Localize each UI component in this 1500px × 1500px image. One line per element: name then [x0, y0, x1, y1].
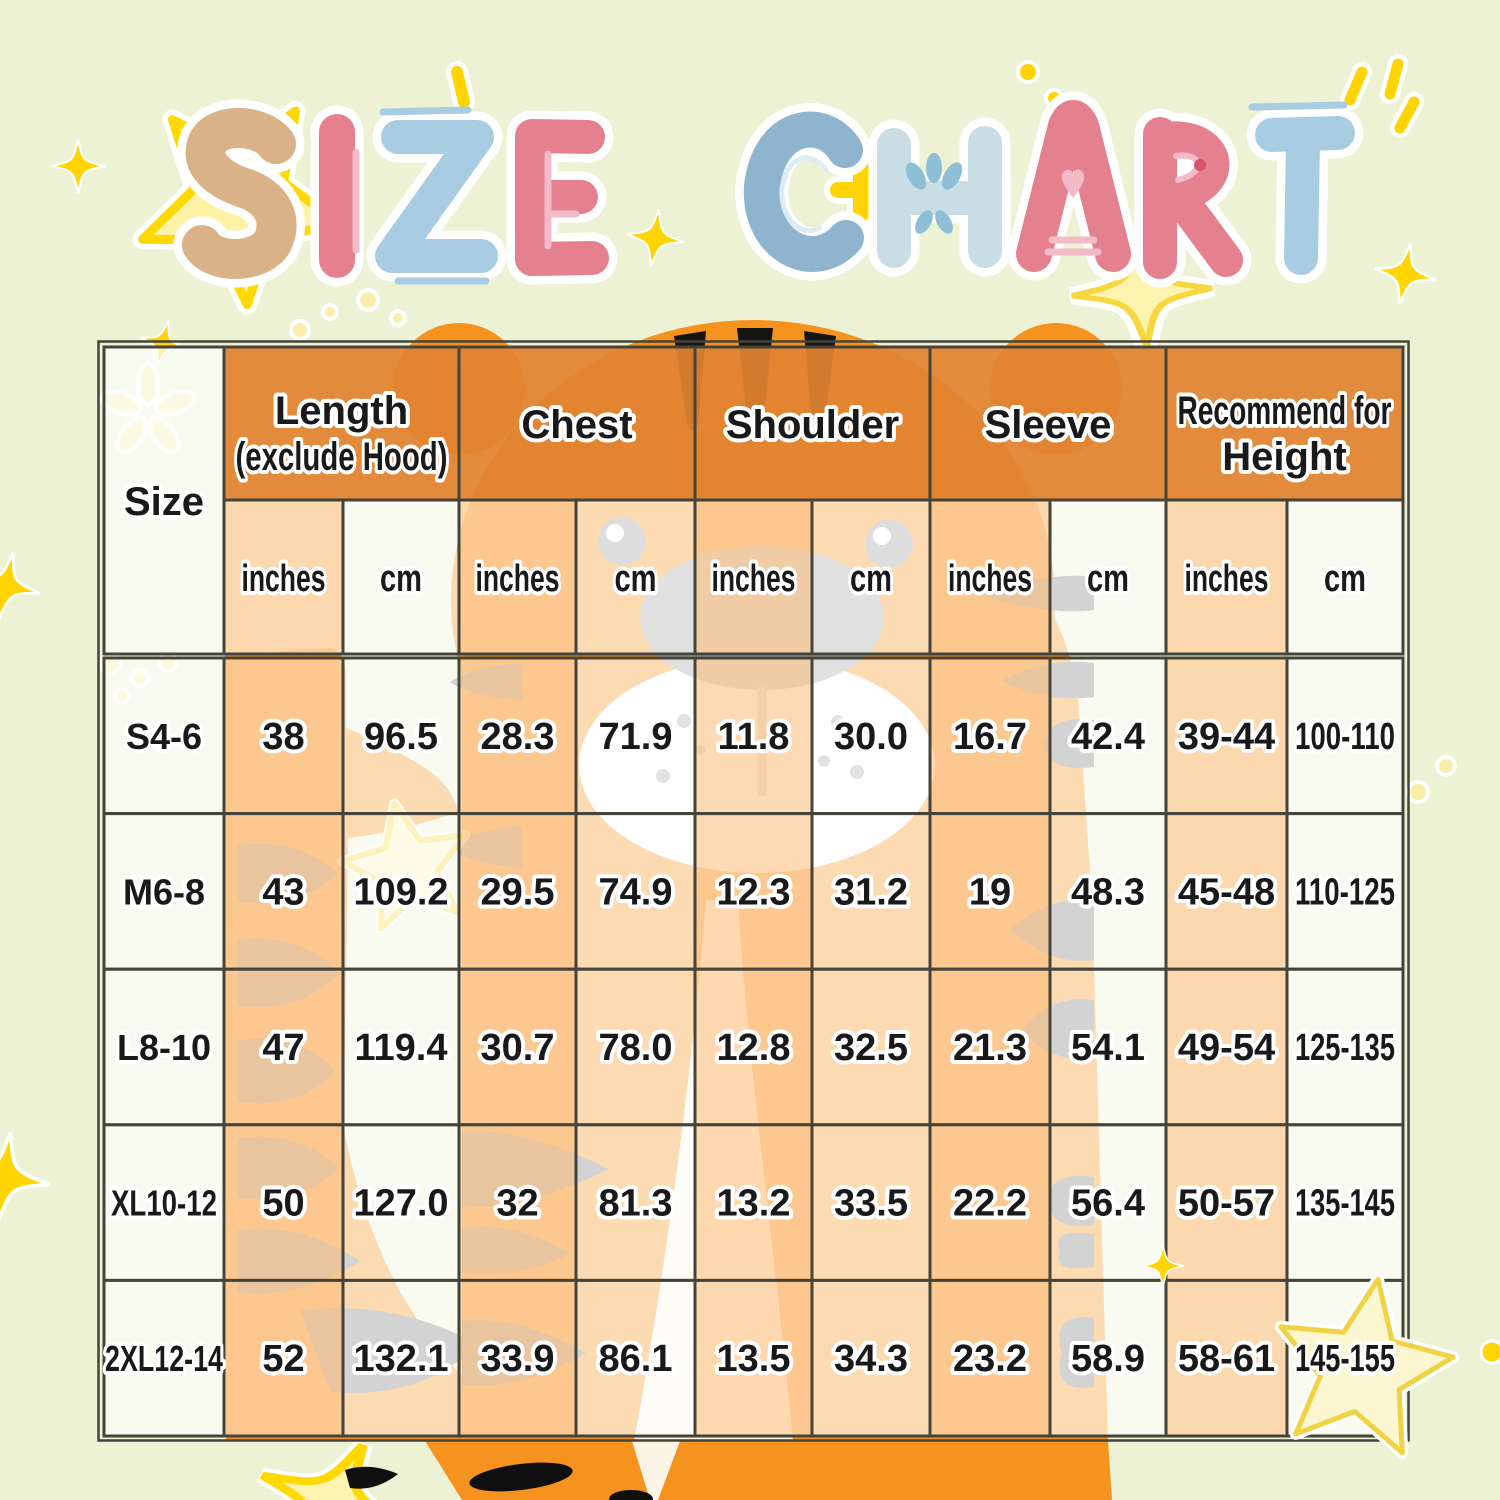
svg-text:49-54: 49-54 — [1178, 1027, 1275, 1069]
svg-text:inches: inches — [242, 558, 326, 600]
svg-text:135-145: 135-145 — [1295, 1183, 1395, 1225]
svg-text:16.7: 16.7 — [953, 716, 1027, 758]
svg-text:50: 50 — [262, 1183, 304, 1225]
svg-text:86.1: 86.1 — [599, 1338, 673, 1380]
svg-text:54.1: 54.1 — [1071, 1027, 1145, 1069]
svg-text:12.3: 12.3 — [717, 871, 791, 913]
svg-text:109.2: 109.2 — [353, 871, 448, 913]
svg-text:50-57: 50-57 — [1178, 1183, 1275, 1225]
svg-text:47: 47 — [262, 1027, 304, 1069]
svg-text:71.9: 71.9 — [599, 716, 673, 758]
svg-text:81.3: 81.3 — [599, 1183, 673, 1225]
svg-text:cm: cm — [1324, 558, 1366, 600]
svg-text:58.9: 58.9 — [1071, 1338, 1145, 1380]
svg-text:74.9: 74.9 — [599, 871, 673, 913]
svg-text:42.4: 42.4 — [1071, 716, 1145, 758]
svg-text:S4-6: S4-6 — [126, 716, 202, 757]
svg-text:28.3: 28.3 — [481, 716, 555, 758]
svg-text:31.2: 31.2 — [834, 871, 908, 913]
svg-text:inches: inches — [948, 558, 1032, 600]
svg-text:(exclude Hood): (exclude Hood) — [236, 435, 448, 479]
svg-text:32: 32 — [496, 1183, 538, 1225]
svg-text:inches: inches — [712, 558, 796, 600]
svg-text:L8-10: L8-10 — [117, 1027, 211, 1068]
svg-text:145-155: 145-155 — [1295, 1338, 1395, 1380]
svg-text:33.9: 33.9 — [481, 1338, 555, 1380]
svg-text:13.2: 13.2 — [717, 1183, 791, 1225]
svg-text:132.1: 132.1 — [353, 1338, 448, 1380]
svg-text:30.0: 30.0 — [834, 716, 908, 758]
svg-text:127.0: 127.0 — [353, 1183, 448, 1225]
svg-text:inches: inches — [476, 558, 560, 600]
svg-text:125-135: 125-135 — [1295, 1027, 1395, 1069]
svg-text:96.5: 96.5 — [364, 716, 438, 758]
svg-text:119.4: 119.4 — [355, 1027, 448, 1069]
svg-text:29.5: 29.5 — [481, 871, 555, 913]
svg-text:Recommend for: Recommend for — [1178, 389, 1392, 433]
svg-text:Sleeve: Sleeve — [985, 403, 1112, 447]
svg-text:cm: cm — [850, 558, 892, 600]
svg-text:52: 52 — [262, 1338, 304, 1380]
svg-text:23.2: 23.2 — [953, 1338, 1027, 1380]
svg-text:11.8: 11.8 — [718, 716, 790, 758]
svg-text:100-110: 100-110 — [1295, 716, 1395, 758]
svg-text:21.3: 21.3 — [953, 1027, 1027, 1069]
svg-text:cm: cm — [1087, 558, 1129, 600]
svg-text:13.5: 13.5 — [717, 1338, 791, 1380]
svg-text:Chest: Chest — [521, 403, 632, 447]
svg-text:19: 19 — [969, 871, 1011, 913]
svg-text:78.0: 78.0 — [599, 1027, 673, 1069]
svg-text:cm: cm — [380, 558, 422, 600]
svg-text:110-125: 110-125 — [1295, 871, 1395, 913]
svg-text:Shoulder: Shoulder — [726, 403, 899, 447]
svg-text:Height: Height — [1222, 435, 1346, 479]
svg-text:Size: Size — [124, 480, 204, 524]
svg-text:XL10-12: XL10-12 — [111, 1183, 217, 1224]
svg-text:Length: Length — [275, 389, 408, 433]
svg-text:34.3: 34.3 — [834, 1338, 908, 1380]
svg-text:M6-8: M6-8 — [123, 871, 205, 912]
svg-text:56.4: 56.4 — [1071, 1183, 1145, 1225]
svg-text:30.7: 30.7 — [481, 1027, 555, 1069]
svg-text:38: 38 — [262, 716, 304, 758]
svg-text:43: 43 — [262, 871, 304, 913]
svg-text:2XL12-14: 2XL12-14 — [105, 1338, 223, 1379]
svg-text:22.2: 22.2 — [953, 1183, 1027, 1225]
svg-text:32.5: 32.5 — [834, 1027, 908, 1069]
svg-text:58-61: 58-61 — [1178, 1338, 1275, 1380]
svg-text:33.5: 33.5 — [834, 1183, 908, 1225]
svg-text:inches: inches — [1185, 558, 1269, 600]
svg-text:48.3: 48.3 — [1071, 871, 1145, 913]
svg-text:45-48: 45-48 — [1178, 871, 1275, 913]
svg-text:39-44: 39-44 — [1178, 716, 1275, 758]
svg-text:12.8: 12.8 — [717, 1027, 791, 1069]
svg-text:cm: cm — [615, 558, 657, 600]
